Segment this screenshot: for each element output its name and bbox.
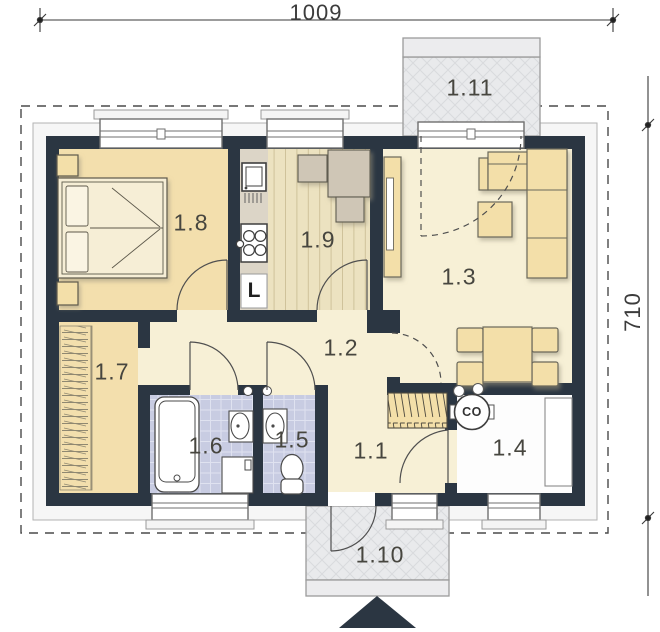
room-label-1-4: 1.4 xyxy=(493,435,528,462)
coffee-table xyxy=(478,202,512,237)
kitchen-table xyxy=(328,150,370,197)
hall-cabinet xyxy=(388,393,447,428)
tv xyxy=(387,178,394,250)
dimension-width-label: 1009 xyxy=(290,0,343,26)
room-label-1-8: 1.8 xyxy=(174,210,209,237)
room-label-1-9: 1.9 xyxy=(301,227,336,254)
closet-hangers xyxy=(60,326,92,490)
utility-cabinet xyxy=(545,398,572,486)
room-label-1-2: 1.2 xyxy=(324,335,359,362)
entry-door-opening xyxy=(328,492,375,506)
room-label-1-3: 1.3 xyxy=(442,264,477,291)
room-label-1-6: 1.6 xyxy=(189,433,224,460)
room-label-1-7: 1.7 xyxy=(95,359,130,386)
cooktop xyxy=(241,224,267,262)
sofa-vertical xyxy=(527,149,567,278)
entrance-arrow-icon xyxy=(339,596,416,628)
room-label-1-11: 1.11 xyxy=(446,75,493,102)
fridge-marker: L xyxy=(248,279,261,303)
floor-plan: 1009 710 1.8 1.9 1.3 1.2 1.7 1.6 1.5 1.1… xyxy=(0,0,660,632)
dimension-height-label: 710 xyxy=(620,292,646,332)
room-label-1-5: 1.5 xyxy=(275,427,310,454)
dimension-right xyxy=(642,76,654,596)
boiler-marker: CO xyxy=(462,405,482,419)
dining-table xyxy=(483,327,532,382)
room-label-1-1: 1.1 xyxy=(354,438,389,465)
toilet xyxy=(281,455,303,482)
room-label-1-10: 1.10 xyxy=(356,542,405,569)
floor-plan-drawing xyxy=(0,0,660,632)
